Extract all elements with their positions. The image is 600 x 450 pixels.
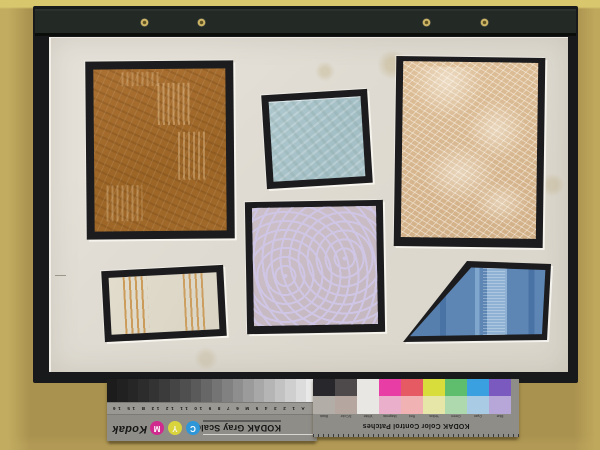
gray-step xyxy=(296,379,307,402)
patch-cyan xyxy=(467,379,489,397)
gray-step xyxy=(149,379,160,402)
gray-step xyxy=(286,379,297,402)
patch-label: Magenta xyxy=(381,414,400,418)
patch-labels-row: BlueCyanGreenYellowRedMagentaWhite3/Colo… xyxy=(313,414,511,419)
gray-scale-steps xyxy=(107,379,317,402)
patch-label: Blue xyxy=(491,414,510,418)
fabric-brown xyxy=(93,68,226,231)
fabric-blue-trapezoid xyxy=(400,258,553,344)
gray-step xyxy=(139,379,150,402)
gray-scale-index-row: A 1 2 3 4 5 M 6 7 8 9 10 11 12 13 B 15 1… xyxy=(107,402,317,415)
fabric-tan xyxy=(401,61,538,239)
patch-tint-row xyxy=(313,397,511,415)
patch-tint-3/color xyxy=(335,397,357,415)
grommet-icon xyxy=(480,18,489,27)
patch-black xyxy=(313,379,335,397)
sample-board xyxy=(33,6,578,383)
patch-label: Cyan xyxy=(469,414,488,418)
fabric-striped xyxy=(109,272,220,335)
gray-step xyxy=(265,379,276,402)
swatch-blue-trapezoid xyxy=(400,258,553,344)
patch-red xyxy=(401,379,423,397)
grommet-icon xyxy=(422,18,431,27)
patch-green xyxy=(445,379,467,397)
patch-tint-magenta xyxy=(379,397,401,415)
patch-3/color xyxy=(335,379,357,397)
patch-saturated-row xyxy=(313,379,511,397)
gray-step xyxy=(244,379,255,402)
binder-top-strip xyxy=(35,9,576,36)
gray-step xyxy=(191,379,202,402)
kodak-gray-scale-strip: KODAK Gray Scale Kodak CYM A 1 2 3 4 5 M… xyxy=(107,380,317,441)
grommet-icon xyxy=(140,18,149,27)
gray-scale-index-labels: A 1 2 3 4 5 M 6 7 8 9 10 11 12 13 B 15 1… xyxy=(107,406,305,411)
grommet-icon xyxy=(197,18,206,27)
strip-shadow xyxy=(109,441,315,444)
pencil-mark xyxy=(55,275,66,276)
cym-dot-c: C xyxy=(186,421,200,435)
patch-label: Black xyxy=(315,414,334,418)
fabric-lavender xyxy=(252,206,378,326)
gray-step xyxy=(118,379,129,402)
patch-label: 3/Color xyxy=(337,414,356,418)
patch-tint-blue xyxy=(489,397,511,415)
gray-scale-title: KODAK Gray Scale xyxy=(196,423,281,433)
gray-step xyxy=(223,379,234,402)
gray-step xyxy=(128,379,139,402)
color-patches-body: BlueCyanGreenYellowRedMagentaWhite3/Colo… xyxy=(313,379,511,419)
mat-board xyxy=(49,37,568,372)
patch-label: Green xyxy=(447,414,466,418)
swatch-brown-diagonal-weave xyxy=(85,60,235,239)
patch-tint-white xyxy=(357,397,379,415)
gray-step xyxy=(107,379,118,402)
swatch-lavender-maze xyxy=(245,200,385,334)
patch-tint-black xyxy=(313,397,335,415)
patch-white xyxy=(357,379,379,397)
cym-dot-m: M xyxy=(150,421,164,435)
patch-blue xyxy=(489,379,511,397)
gray-step xyxy=(170,379,181,402)
gray-step xyxy=(275,379,286,402)
swatch-tan-fern-damask xyxy=(394,56,546,248)
ruler-ticks xyxy=(313,431,519,437)
strip-margin xyxy=(511,379,519,419)
gray-step xyxy=(160,379,171,402)
kodak-logo: Kodak xyxy=(112,423,147,435)
swatch-cream-orange-stripes xyxy=(101,265,227,342)
photo-textile-sample-board: KODAK Gray Scale Kodak CYM A 1 2 3 4 5 M… xyxy=(0,0,600,450)
patch-yellow xyxy=(423,379,445,397)
patch-label: Yellow xyxy=(425,414,444,418)
color-patches-title: KODAK Color Control Patches xyxy=(313,419,519,431)
patch-tint-yellow xyxy=(423,397,445,415)
patch-tint-green xyxy=(445,397,467,415)
patch-magenta xyxy=(379,379,401,397)
patch-label: White xyxy=(359,414,378,418)
gray-step xyxy=(212,379,223,402)
fabric-light-blue xyxy=(269,96,366,181)
cym-dot-y: Y xyxy=(168,421,182,435)
gray-step xyxy=(254,379,265,402)
gray-step xyxy=(181,379,192,402)
patch-label: Red xyxy=(403,414,422,418)
gray-scale-footer: KODAK Gray Scale Kodak CYM xyxy=(107,415,317,441)
strip-shadow xyxy=(316,437,517,440)
gray-step xyxy=(233,379,244,402)
kodak-color-control-strip: KODAK Color Control Patches BlueCyanGree… xyxy=(313,379,519,437)
rule-line xyxy=(203,434,313,435)
swatch-light-blue-square xyxy=(261,89,373,189)
small-print xyxy=(203,420,281,422)
patch-tint-cyan xyxy=(467,397,489,415)
gray-step xyxy=(202,379,213,402)
patch-tint-red xyxy=(401,397,423,415)
